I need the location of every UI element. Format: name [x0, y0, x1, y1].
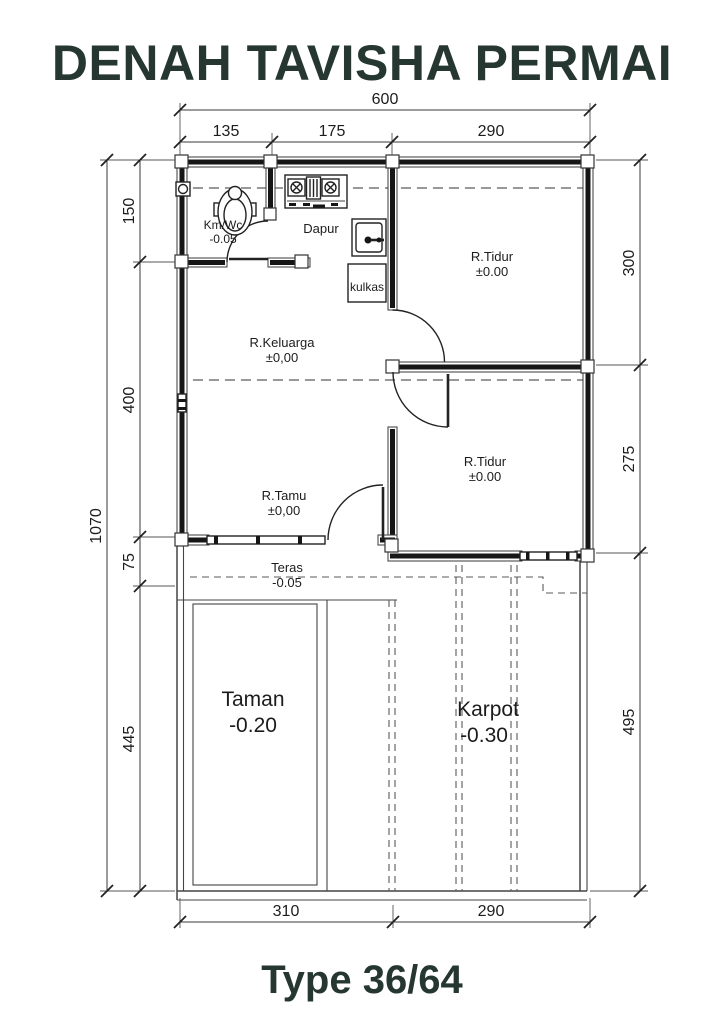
- dim-right-seg1: 300: [621, 250, 638, 277]
- sink-icon: [352, 219, 386, 256]
- room-label-teras: Teras: [271, 560, 303, 575]
- dimension-left: 1070 150 400 75 445: [88, 154, 175, 897]
- dimension-top: 600 135 175 290: [174, 91, 596, 155]
- bedroom2-window: [520, 552, 577, 560]
- teras-dashed-edge: [190, 577, 587, 593]
- dim-bottom-seg2: 290: [478, 903, 505, 920]
- room-level-keluarga: ±0,00: [266, 350, 298, 365]
- dim-top-seg1: 135: [213, 123, 240, 140]
- vent-window: [176, 182, 190, 196]
- dim-top-seg3: 290: [478, 123, 505, 140]
- dim-right-seg2: 275: [621, 446, 638, 473]
- room-label-kulkas: kulkas: [350, 280, 384, 294]
- room-label-tamu: R.Tamu: [262, 488, 307, 503]
- dim-top-seg2: 175: [319, 123, 346, 140]
- room-label-kmwc: Km/Wc: [204, 218, 243, 232]
- dim-top-total: 600: [372, 91, 399, 108]
- dim-bottom-seg1: 310: [273, 903, 300, 920]
- room-label-tidur2: R.Tidur: [464, 454, 507, 469]
- floor-plan-drawing: DENAH TAVISHA PERMAI: [0, 0, 724, 1024]
- type-label: Type 36/64: [261, 958, 463, 1002]
- room-label-keluarga: R.Keluarga: [249, 335, 315, 350]
- room-label-taman: Taman: [221, 688, 284, 711]
- dim-right-seg3: 495: [621, 709, 638, 736]
- room-label-dapur: Dapur: [303, 221, 339, 236]
- room-label-karpot: Karpot: [457, 698, 519, 721]
- dimension-right: 300 275 495: [590, 154, 648, 897]
- dim-left-seg4: 445: [121, 726, 138, 753]
- room-label-tidur1: R.Tidur: [471, 249, 514, 264]
- dim-left-seg2: 400: [121, 387, 138, 414]
- garden-bed-outline: [193, 604, 317, 885]
- room-level-karpot: -0.30: [460, 724, 508, 747]
- room-level-teras: -0.05: [272, 575, 302, 590]
- living-room-window: [207, 536, 325, 544]
- stove-icon: [285, 175, 347, 208]
- floor-plan-page: DENAH TAVISHA PERMAI: [0, 0, 724, 1024]
- room-level-tamu: ±0,00: [268, 503, 300, 518]
- room-level-taman: -0.20: [229, 714, 277, 737]
- bedroom1-door: [393, 310, 445, 362]
- side-window: [178, 394, 186, 412]
- dim-left-seg1: 150: [121, 198, 138, 225]
- dimension-bottom: 310 290: [174, 898, 596, 928]
- page-title: DENAH TAVISHA PERMAI: [52, 35, 672, 91]
- dim-left-total: 1070: [88, 508, 105, 544]
- room-level-tidur1: ±0.00: [476, 264, 508, 279]
- room-level-tidur2: ±0.00: [469, 469, 501, 484]
- dim-left-seg3: 75: [121, 553, 138, 571]
- room-level-kmwc: -0.05: [209, 232, 237, 246]
- front-door: [328, 485, 383, 540]
